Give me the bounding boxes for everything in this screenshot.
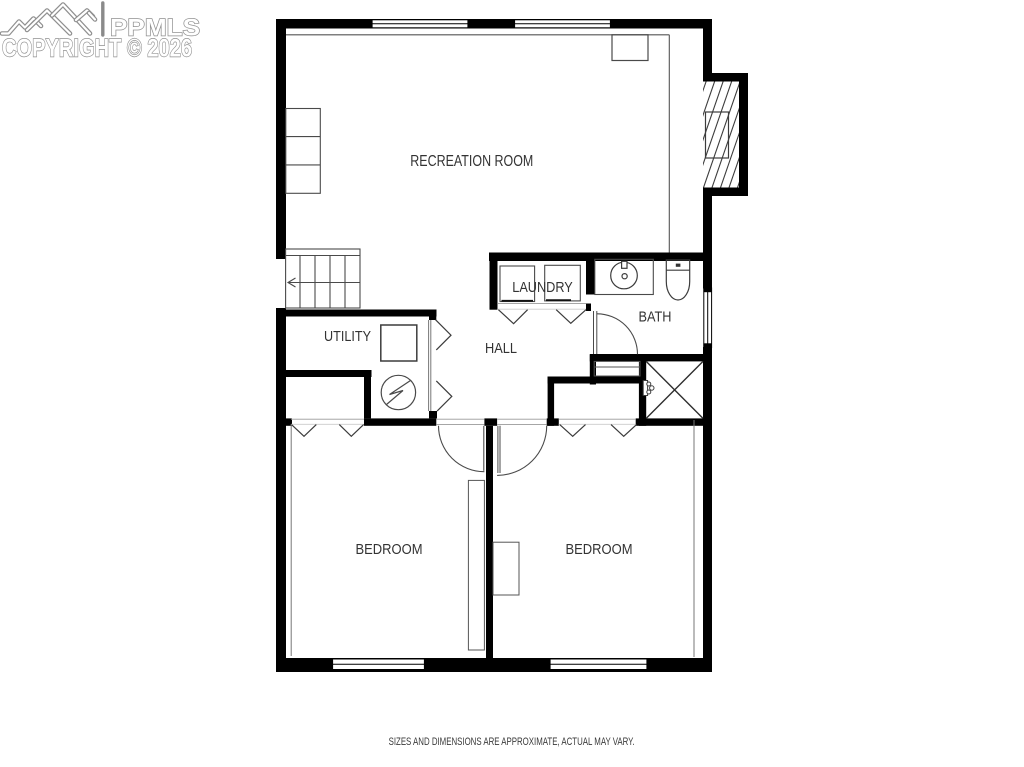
- svg-text:RECREATION ROOM: RECREATION ROOM: [410, 153, 533, 170]
- svg-text:HALL: HALL: [485, 341, 517, 357]
- svg-text:COPYRIGHT © 2026: COPYRIGHT © 2026: [2, 35, 192, 63]
- svg-text:LAUNDRY: LAUNDRY: [512, 280, 573, 296]
- svg-text:SIZES AND DIMENSIONS ARE APPRO: SIZES AND DIMENSIONS ARE APPROXIMATE, AC…: [389, 736, 635, 748]
- svg-text:UTILITY: UTILITY: [324, 329, 371, 345]
- svg-text:BEDROOM: BEDROOM: [566, 542, 633, 558]
- svg-text:BEDROOM: BEDROOM: [356, 542, 423, 558]
- svg-text:BATH: BATH: [639, 310, 672, 326]
